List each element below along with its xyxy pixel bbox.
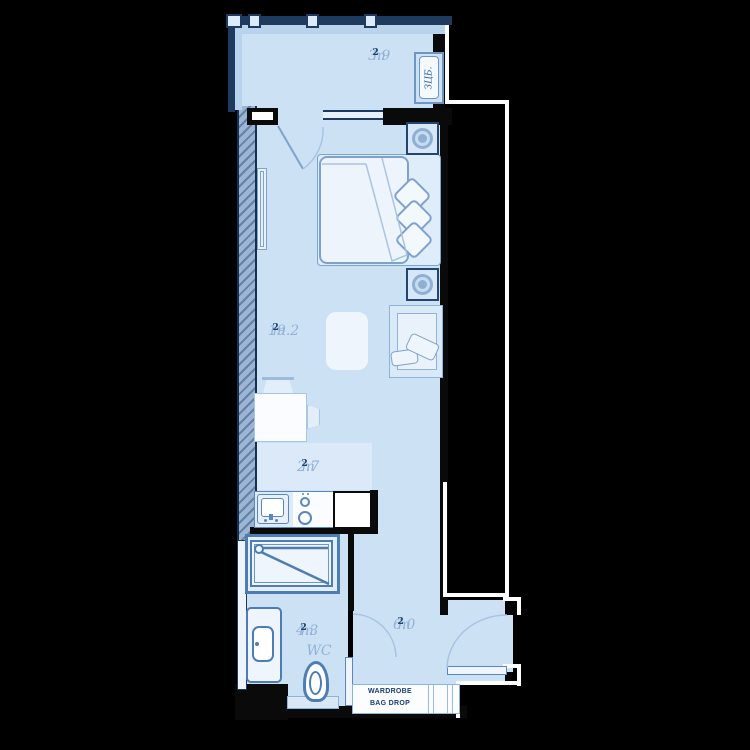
room-area-label: 19.2 m2 bbox=[268, 323, 272, 339]
room-window bbox=[323, 110, 383, 120]
kitchen-cabinet bbox=[333, 491, 372, 529]
edge-corridor-right bbox=[443, 482, 447, 595]
nightstand-bottom bbox=[406, 268, 439, 301]
glazing-top-band bbox=[233, 25, 445, 34]
lamp-icon bbox=[412, 274, 433, 295]
exterior-wall-hatched bbox=[237, 106, 257, 540]
chair-top bbox=[263, 380, 293, 393]
wc-label: WC bbox=[296, 643, 342, 659]
bed-mattress bbox=[319, 156, 409, 264]
washbasin-drain-icon bbox=[255, 642, 259, 646]
balcony-unit-label: ЗЦБ. bbox=[424, 66, 434, 89]
wardrobe-divider bbox=[428, 685, 429, 713]
burner-large-icon bbox=[298, 511, 312, 525]
wall-radiator bbox=[257, 168, 267, 250]
glazing-mullion-3 bbox=[364, 14, 377, 28]
wall-notch bbox=[252, 112, 273, 120]
entrance-door-leaf bbox=[447, 666, 507, 675]
wardrobe-label: WARDROBE BAG DROP bbox=[354, 686, 426, 710]
chair-back-bar bbox=[262, 377, 294, 380]
shower-tray-inner bbox=[254, 544, 329, 583]
kitchen-sink bbox=[257, 494, 289, 524]
edge-right-long bbox=[505, 102, 509, 599]
kitchen-hob bbox=[293, 492, 333, 527]
edge-hall-top bbox=[443, 593, 509, 597]
glazing-mullion-2 bbox=[306, 14, 319, 28]
wardrobe-divider bbox=[452, 685, 453, 713]
toilet-bowl-inner bbox=[309, 671, 322, 695]
glazing-left-line bbox=[228, 16, 235, 112]
desk bbox=[254, 393, 307, 442]
glazing-left-band bbox=[235, 25, 242, 110]
glazing-corner-post bbox=[226, 14, 242, 28]
glazing-mullion-1 bbox=[248, 14, 261, 28]
edge-door-jamb-top-v bbox=[517, 599, 521, 615]
wardrobe-label-line2: BAG DROP bbox=[354, 698, 426, 710]
balcony-unit-box-inner: ЗЦБ. bbox=[419, 56, 439, 99]
wardrobe-label-line1: WARDROBE bbox=[354, 686, 426, 698]
nightstand-top bbox=[406, 122, 439, 155]
wardrobe-divider bbox=[447, 685, 448, 713]
wardrobe-divider bbox=[433, 685, 434, 713]
lamp-icon bbox=[412, 128, 433, 149]
burner-small-icon bbox=[300, 497, 310, 507]
edge-balcony-right bbox=[445, 18, 449, 102]
bathroom-area-label: 4.3 m2 bbox=[296, 623, 300, 639]
glazing-top-line bbox=[228, 16, 452, 25]
bathroom-right-wall bbox=[348, 527, 354, 611]
hallway-area-label: 6.0 m2 bbox=[393, 617, 397, 633]
edge-step-top bbox=[445, 100, 509, 104]
faucet-icon bbox=[269, 514, 273, 520]
kitchen-area-label: 2.7 m2 bbox=[297, 459, 301, 475]
edge-bottom-right-h bbox=[456, 681, 520, 685]
balcony-area-label: 3.9 m2 bbox=[368, 48, 372, 64]
floor-plan: ЗЦБ. bbox=[0, 0, 750, 750]
ottoman-rug bbox=[326, 312, 368, 370]
corridor-upper-floor bbox=[378, 490, 440, 535]
